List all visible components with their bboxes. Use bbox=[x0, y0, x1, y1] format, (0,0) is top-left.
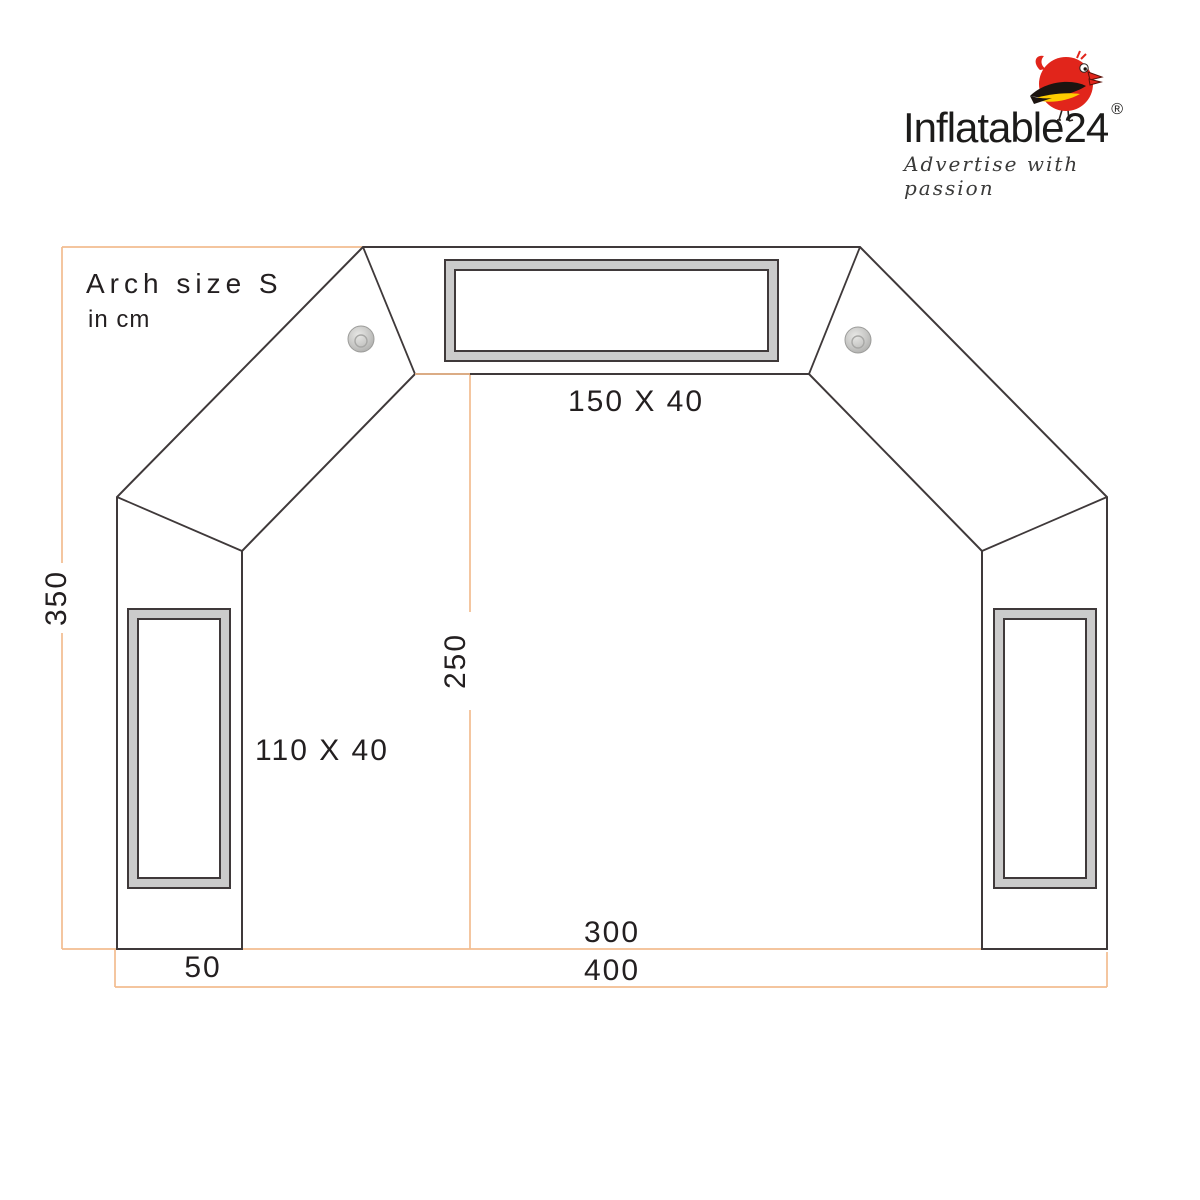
inner-width-label: 300 bbox=[584, 916, 640, 950]
side-banner-size-label: 110 X 40 bbox=[255, 734, 389, 768]
total-height-label: 350 bbox=[40, 570, 74, 626]
logo: Inflatable24® Advertise with passion bbox=[880, 40, 1160, 190]
grommet-right-icon bbox=[845, 327, 871, 353]
unit-note: in cm bbox=[88, 306, 150, 334]
leg-width-label: 50 bbox=[184, 951, 221, 985]
top-banner-frame bbox=[445, 260, 778, 361]
top-banner-size-label: 150 X 40 bbox=[568, 385, 704, 419]
logo-tagline: Advertise with passion bbox=[904, 152, 1160, 200]
logo-brand-text: Inflatable24 bbox=[903, 104, 1108, 151]
left-banner-frame bbox=[128, 609, 230, 888]
page-title: Arch size S bbox=[86, 268, 283, 300]
total-width-label: 400 bbox=[584, 954, 640, 988]
registered-trademark-mark: ® bbox=[1111, 101, 1123, 118]
logo-wordmark: Inflatable24® bbox=[903, 102, 1123, 149]
arch-spec-sheet: Arch size S in cm 150 X 40 110 X 40 350 … bbox=[0, 0, 1200, 1200]
grommet-left-icon bbox=[348, 326, 374, 352]
inner-height-label: 250 bbox=[439, 633, 473, 689]
right-banner-frame bbox=[994, 609, 1096, 888]
